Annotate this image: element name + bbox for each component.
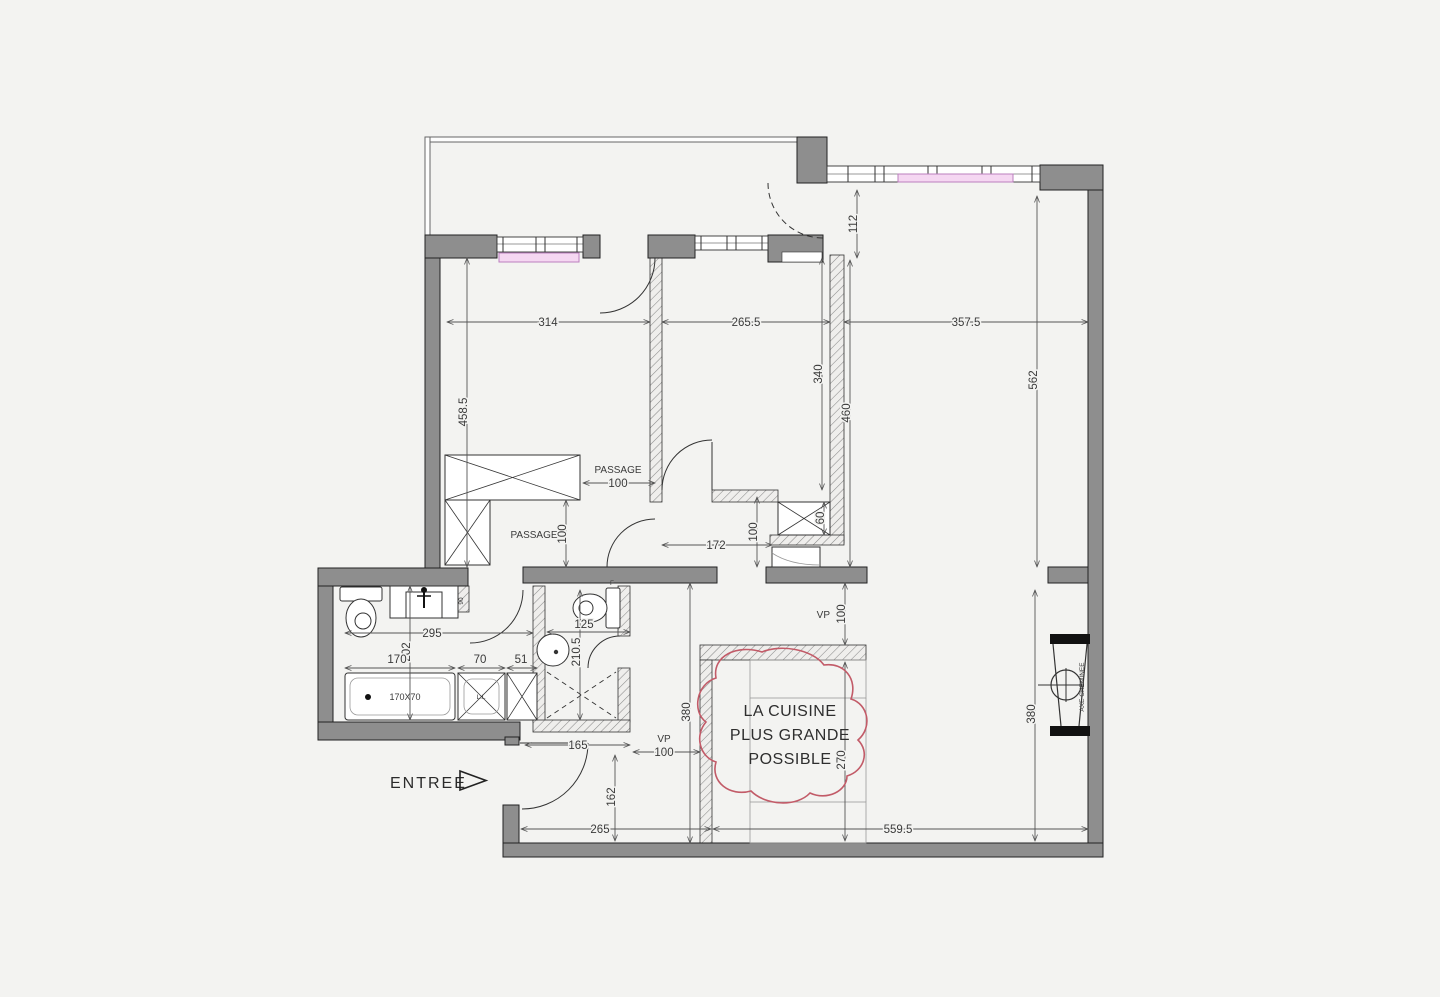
upper-terrace-thin-walls (425, 137, 800, 235)
cloud-text-line3: POSSIBLE (748, 751, 831, 768)
bathtub-size-label: 170X70 (389, 692, 420, 702)
living-wall-stub (1048, 567, 1088, 583)
dim-162: 162 (606, 787, 618, 806)
left-wall (425, 258, 440, 575)
entry-door-jamb (503, 805, 519, 843)
dim-172: 172 (706, 540, 725, 552)
wc-door (588, 636, 620, 668)
bathtub-drain (365, 694, 371, 700)
washer-label: L.L (476, 694, 485, 701)
bedroom1-window (497, 237, 583, 262)
upper-hall-door (600, 258, 655, 313)
bathroom-fixtures: 170X70 L.L 90 (340, 586, 537, 720)
dim-70: 70 (474, 654, 487, 666)
bedroom1-door (607, 519, 655, 567)
cloud-text-line2: PLUS GRANDE (730, 727, 850, 744)
dim-314: 314 (538, 317, 558, 329)
bathroom-bottom-wall (318, 722, 520, 740)
passage-label-2: PASSAGE (510, 530, 557, 541)
bathtub: 170X70 (345, 673, 455, 720)
living-room-window (827, 166, 1040, 182)
dim-340: 340 (813, 364, 825, 383)
vp-label-kitchen: VP (817, 610, 831, 621)
dim-357-5: 357.5 (952, 317, 981, 329)
dim-380-kitchen: 380 (681, 702, 693, 721)
dim-210-5: 210.5 (571, 638, 583, 667)
bedroom1-wardrobe-side (445, 500, 490, 565)
radiator (499, 253, 579, 262)
vp-label-entry: VP (657, 734, 671, 745)
dim-265: 265 (590, 824, 609, 836)
dim-passage2-100: 100 (557, 524, 569, 543)
cloud-text-line1: LA CUISINE (743, 703, 836, 720)
bathroom-closet (507, 673, 537, 720)
bottom-wall (503, 843, 1103, 857)
dim-170: 170 (387, 654, 406, 666)
wc-right-wall-lower (618, 668, 630, 722)
entree-label: ENTREE (390, 775, 467, 792)
floor-plan-canvas: 170X70 L.L 90 F (0, 0, 1440, 992)
dim-270: 270 (836, 750, 848, 769)
corridor-wall-left (523, 567, 717, 583)
closet-bottom-wall (770, 535, 844, 545)
entree-annotation: ENTREE (390, 771, 486, 792)
radiator (898, 174, 1013, 182)
dim-vp-entry-100: 100 (654, 747, 673, 759)
dim-265-5: 265.5 (732, 317, 761, 329)
washing-machine: L.L (458, 673, 505, 720)
dim-112: 112 (848, 215, 860, 233)
wc-bottom-wall (533, 720, 630, 732)
dim-460: 460 (841, 403, 853, 422)
dim-559-5: 559.5 (884, 824, 913, 836)
fireplace-axis-label: AXE CHEMINEE (1079, 662, 1086, 712)
bathroom-left-wall (318, 568, 333, 740)
dim-corridor-100: 100 (748, 522, 760, 541)
kitchen-annotation: LA CUISINE PLUS GRANDE POSSIBLE (698, 648, 867, 803)
top-corner-wall (797, 137, 827, 183)
dim-passage1-100: 100 (608, 478, 627, 490)
fireplace: AXE CHEMINEE (1038, 634, 1090, 736)
top-right-wall (1040, 165, 1103, 190)
dim-295: 295 (422, 628, 441, 640)
revision-cloud (698, 648, 867, 803)
dim-380-living: 380 (1026, 704, 1038, 723)
bathroom-top-wall (318, 568, 468, 586)
terrace-door-dashed (768, 183, 823, 238)
dim-51: 51 (515, 654, 528, 666)
bedroom1-wardrobe-top (445, 455, 580, 500)
bedroom2-window (695, 236, 768, 250)
bedroom2-left-wall (650, 258, 662, 502)
bathroom-door (470, 590, 523, 643)
kitchen-top-wall (700, 645, 866, 660)
wc-marker-label: F (610, 580, 614, 587)
dim-vp-kitchen-100: 100 (836, 604, 848, 623)
bedroom2-cabinet (772, 547, 820, 567)
right-wall (1088, 190, 1103, 857)
duct-label: 90 (458, 597, 465, 605)
passage-label-1: PASSAGE (594, 465, 641, 476)
dim-562: 562 (1028, 370, 1040, 389)
dim-125: 125 (574, 619, 593, 631)
dim-165: 165 (568, 740, 587, 752)
entry-door (520, 743, 588, 809)
kitchen-left-wall (700, 660, 712, 843)
corridor-wall-right (766, 567, 867, 583)
bedroom2-door (662, 440, 712, 490)
toilet (340, 587, 382, 637)
bedroom2-bottom-wall (712, 490, 778, 502)
floor-plan-drawing: 170X70 L.L 90 F (0, 0, 1440, 992)
dim-458-5: 458.5 (458, 398, 470, 427)
wc-round-sink (537, 634, 569, 666)
vanity-sink (390, 586, 458, 618)
bedroom2-right-wall (830, 255, 844, 543)
dim-60: 60 (815, 512, 827, 525)
shower (547, 672, 616, 718)
